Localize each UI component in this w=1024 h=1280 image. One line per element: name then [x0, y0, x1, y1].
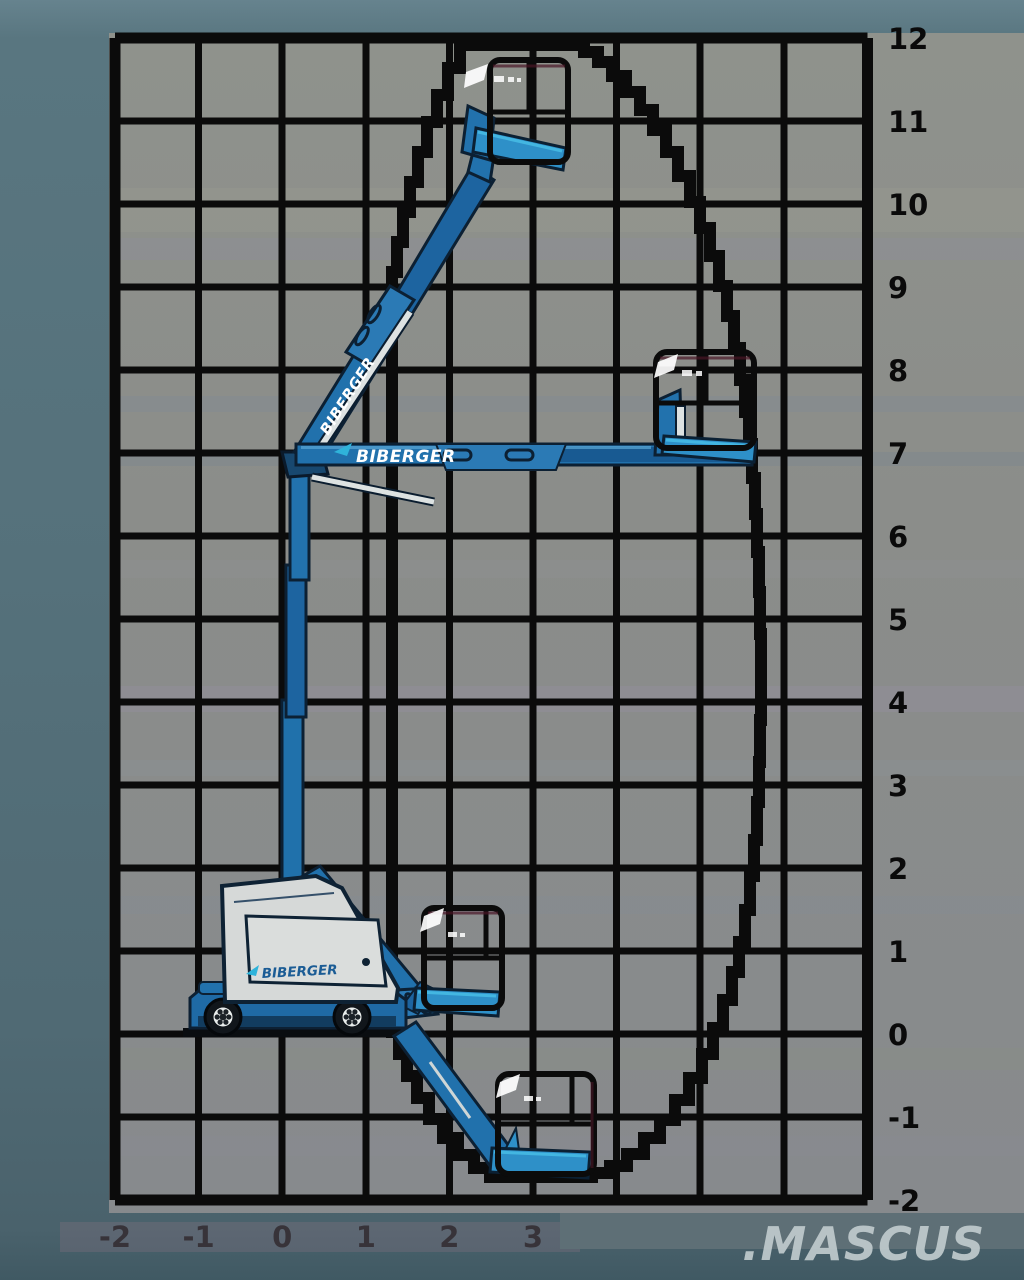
diagram-canvas: BIBERGER BIBERGER [0, 0, 1024, 1280]
height-axis-label: 1 [888, 935, 908, 969]
height-axis-label: 2 [888, 852, 908, 886]
height-axis-label: 4 [888, 686, 908, 720]
height-axis-label: 10 [888, 188, 928, 222]
height-axis-label: 0 [888, 1018, 908, 1052]
working-envelope-diagram: BIBERGER BIBERGER [0, 0, 1024, 1280]
mascus-watermark: .MASCUS [742, 1217, 985, 1271]
height-axis-label: 3 [888, 769, 908, 803]
height-axis-label: -1 [888, 1101, 920, 1135]
door-handle [362, 958, 370, 966]
height-axis-label: 11 [888, 105, 928, 139]
brand-logo-horizontal-boom: BIBERGER [356, 447, 456, 467]
height-axis-label: 6 [888, 520, 908, 554]
height-axis-label: 8 [888, 354, 908, 388]
height-axis-label: 7 [888, 437, 908, 471]
wheel-rear [334, 999, 370, 1035]
height-axis-label: 5 [888, 603, 908, 637]
wheel-front [205, 999, 241, 1035]
height-axis-label: -2 [888, 1184, 920, 1218]
bottom-band [60, 1222, 580, 1252]
height-axis-label: 9 [888, 271, 908, 305]
height-axis-label: 12 [888, 22, 928, 56]
